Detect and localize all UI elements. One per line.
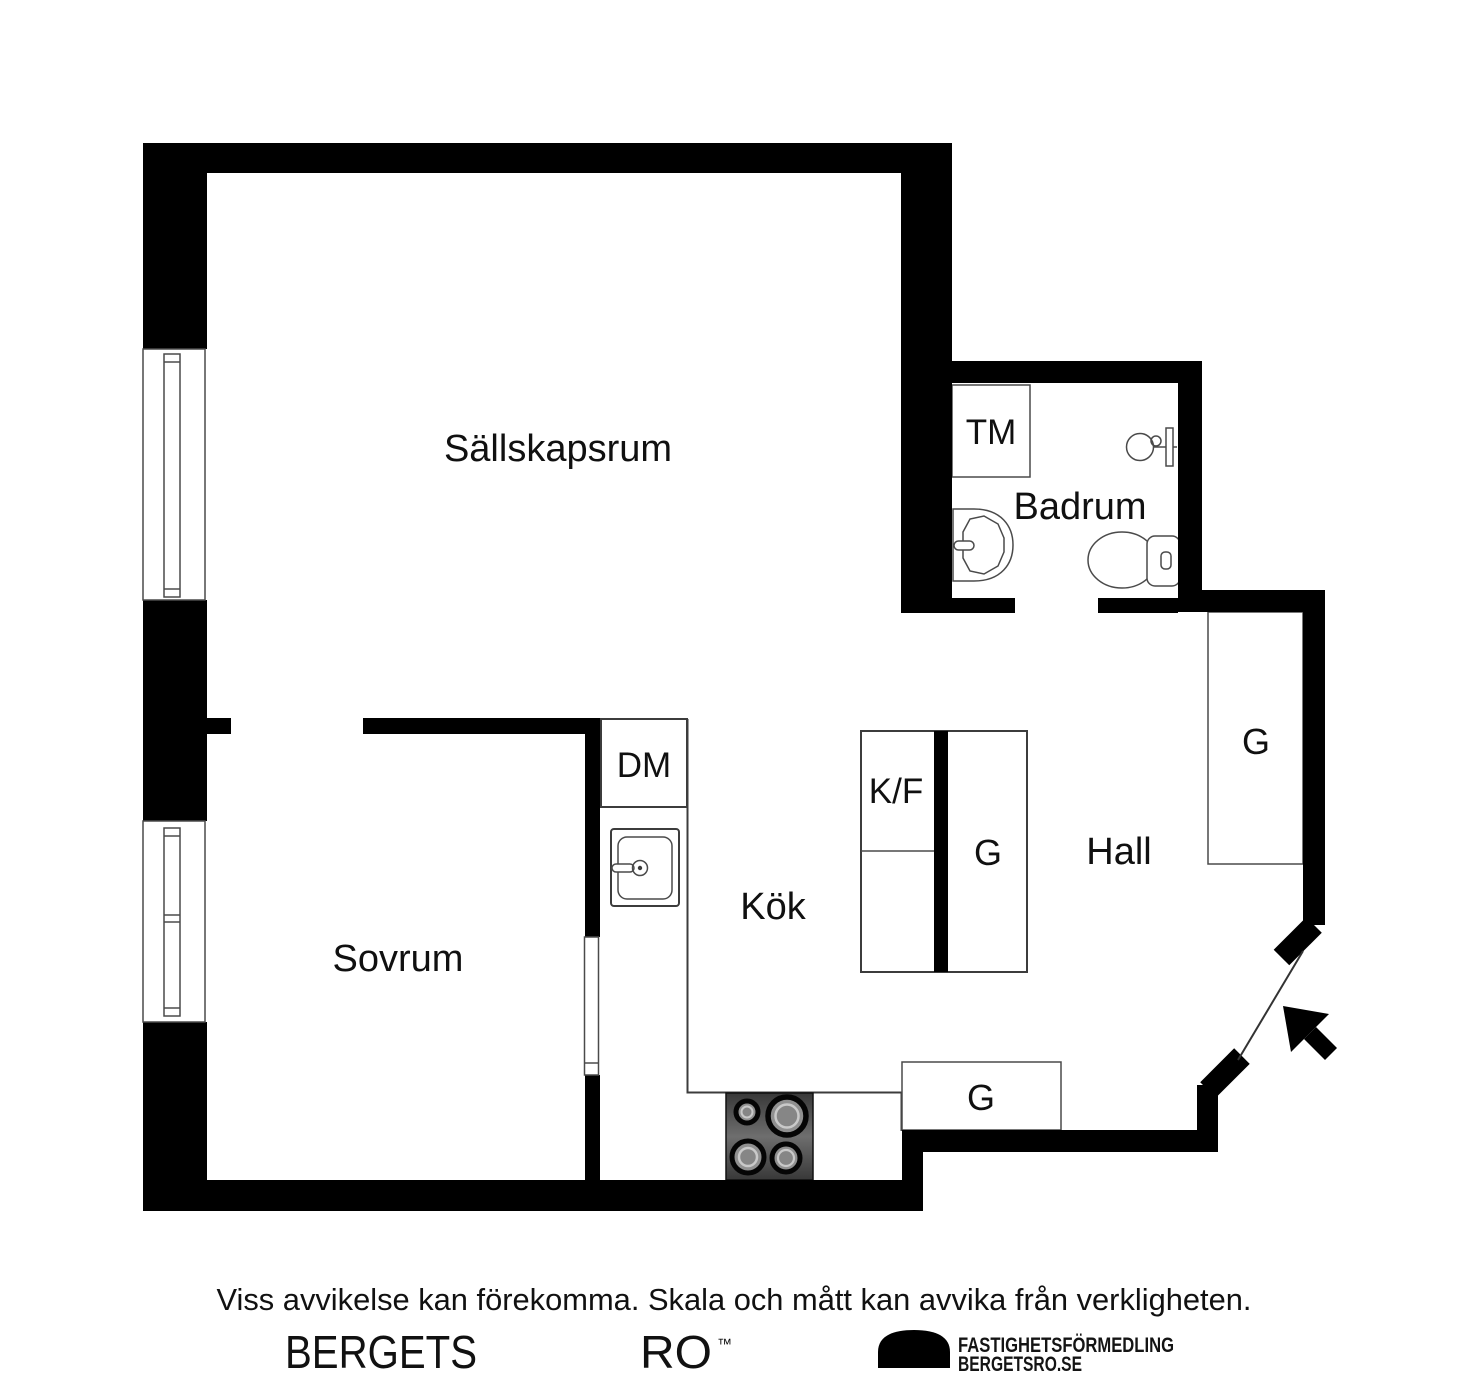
wall-bottom-right — [902, 1130, 1218, 1152]
room-label-sovrum: Sovrum — [333, 938, 464, 980]
disclaimer-text: Viss avvikelse kan förekomma. Skala och … — [217, 1282, 1252, 1317]
unit-label-g-hall: G — [1242, 721, 1270, 762]
room-label-hall: Hall — [1086, 831, 1151, 873]
trademark-symbol: ™ — [717, 1336, 732, 1353]
wall-right-outer — [1303, 612, 1325, 925]
wall-bottom — [143, 1180, 923, 1211]
burner-medium-left — [732, 1141, 764, 1173]
wall-bath-bottom-left — [952, 598, 1015, 613]
unit-label-g-kitchen: G — [974, 832, 1002, 873]
room-label-kok: Kök — [740, 886, 806, 928]
kitchen-unit — [861, 731, 1027, 972]
brand-dome-icon — [878, 1330, 950, 1368]
unit-label-g-entry: G — [967, 1077, 995, 1118]
unit-label-kf: K/F — [869, 772, 923, 811]
sliding-door-icon — [585, 937, 599, 1075]
wall-left-middle — [143, 600, 207, 821]
wall-sovrum-stub — [207, 718, 231, 734]
wall-bath-left-column — [901, 173, 952, 613]
brand-word-ro: RO — [640, 1326, 712, 1378]
wall-bath-bottom-right — [1098, 598, 1178, 613]
room-label-sallskapsrum: Sällskapsrum — [444, 428, 672, 470]
burner-small — [736, 1101, 758, 1123]
burner-large — [768, 1097, 806, 1135]
stove-icon — [726, 1093, 813, 1180]
window-icon — [143, 821, 205, 1022]
wall-bath-top — [901, 361, 1202, 383]
wall-sovrum-right-lower — [585, 1075, 600, 1182]
wall-top — [143, 143, 952, 173]
brand-word-bergets: BERGETS — [285, 1326, 477, 1378]
wall-left-lower — [143, 1022, 207, 1182]
unit-label-tm: TM — [966, 413, 1017, 452]
wall-bath-right — [1178, 383, 1202, 612]
wall-sovrum-top — [363, 718, 600, 734]
room-label-badrum: Badrum — [1013, 486, 1146, 528]
wall-hall-top — [1202, 590, 1325, 612]
burner-medium-right — [772, 1144, 800, 1172]
unit-label-dm: DM — [617, 746, 671, 785]
unit-divider-wall — [934, 731, 948, 972]
agency-line-2: BERGETSRO.SE — [958, 1353, 1082, 1376]
kitchen-sink-icon — [611, 829, 679, 906]
wall-sovrum-right — [585, 733, 600, 937]
floor-plan-page: Sällskapsrum Sovrum Kök Badrum Hall TM D… — [0, 0, 1470, 1400]
window-icon — [143, 349, 205, 600]
wall-left-upper — [143, 143, 207, 349]
floor-plan-svg: Sällskapsrum Sovrum Kök Badrum Hall TM D… — [0, 0, 1470, 1400]
